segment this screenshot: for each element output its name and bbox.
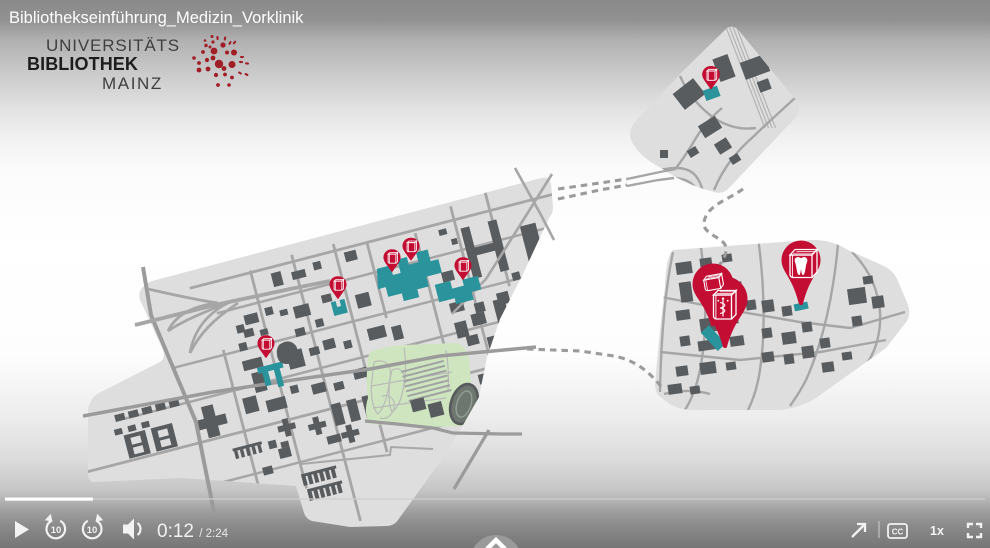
svg-text:10: 10 xyxy=(87,525,98,536)
svg-text:10: 10 xyxy=(51,525,62,536)
svg-text:CC: CC xyxy=(892,528,904,537)
